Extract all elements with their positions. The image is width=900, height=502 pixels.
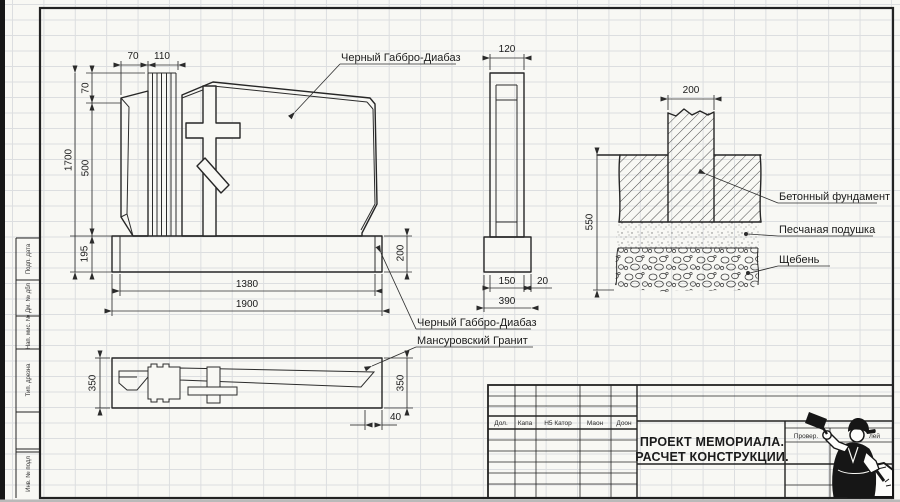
dim-110: 110 (154, 51, 170, 62)
margin-label-1: Подп. дата (26, 243, 32, 274)
dim-20: 20 (537, 276, 549, 287)
front-view (112, 73, 382, 272)
titleblock-col-5: Доон (616, 420, 632, 427)
dim-1380: 1380 (236, 279, 259, 290)
dim-1700: 1700 (64, 148, 75, 171)
dim-390: 390 (499, 296, 516, 307)
label-granite: Мансуровский Гранит (417, 335, 528, 347)
plan-view (112, 358, 382, 408)
dim-150: 150 (499, 276, 516, 287)
cross-motif (186, 86, 240, 236)
dim-70-top: 70 (127, 51, 139, 62)
margin-label-3: Нап. мис. № (25, 315, 32, 350)
margin-label-2: Дм. № дбл (25, 283, 32, 313)
dim-40: 40 (390, 412, 402, 423)
dim-195: 195 (80, 245, 91, 262)
label-gravel: Щебень (779, 254, 820, 266)
dim-70-left: 70 (81, 82, 92, 94)
technical-drawing: Подп. дата Дм. № дбл Нап. мис. № Тип. др… (0, 0, 900, 502)
dim-350-right: 350 (396, 374, 407, 391)
plan-view-dimensions: 350 350 40 (88, 358, 414, 430)
project-title-line1: ПРОЕКТ МЕМОРИАЛА. (640, 435, 784, 449)
blueprint-sheet: Подп. дата Дм. № дбл Нап. мис. № Тип. др… (0, 0, 900, 502)
titleblock-col-2: Капа (518, 420, 533, 427)
foundation-section (597, 109, 761, 292)
dim-500: 500 (81, 159, 92, 176)
label-concrete: Бетонный фундамент (779, 191, 890, 203)
project-title-line2: РАСЧЕТ КОНСТРУКЦИИ. (635, 450, 789, 464)
checked-label: Провер. (794, 433, 819, 440)
dim-200-right: 200 (396, 244, 407, 261)
label-gabbro-top: Черный Габбро-Диабаз (295, 52, 461, 112)
front-view-dimensions: 70 110 70 500 1700 195 1380 1900 200 (64, 51, 413, 316)
label-sand: Песчаная подушка (779, 224, 876, 236)
dim-550: 550 (585, 213, 596, 230)
margin-label-4: Тип. дрезна (26, 363, 32, 396)
sheet-frame (40, 8, 893, 498)
label-gabbro-top-text: Черный Габбро-Диабаз (341, 52, 461, 64)
titleblock-col-1: Дол. (494, 420, 508, 427)
stonemason-illustration (805, 412, 893, 497)
titleblock-col-3: Н5 Катор (544, 420, 572, 427)
dim-350-left: 350 (88, 374, 99, 391)
mallet-icon (805, 412, 827, 430)
dim-120: 120 (499, 44, 516, 55)
dim-200-section: 200 (683, 85, 700, 96)
margin-label-5: Инв. № подл (25, 456, 32, 492)
label-gabbro-bottom: Черный Габбро-Диабаз (417, 317, 537, 329)
titleblock-col-4: Маон (587, 420, 604, 427)
side-view (484, 73, 531, 272)
scan-edge-left (0, 0, 5, 502)
material-labels: Черный Габбро-Диабаз Мансуровский Гранит (372, 253, 537, 366)
dim-1900: 1900 (236, 299, 259, 310)
